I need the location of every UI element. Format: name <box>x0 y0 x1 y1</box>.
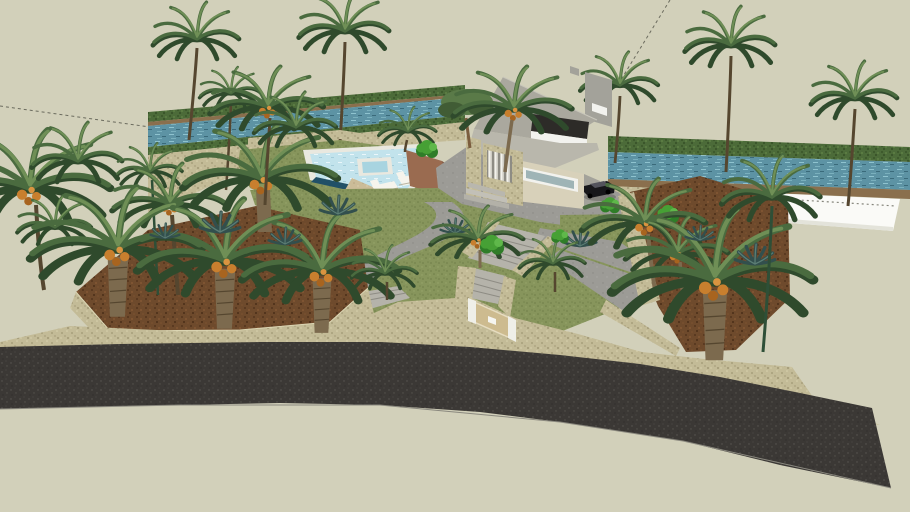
car-wheel <box>606 190 611 195</box>
jacuzzi <box>362 161 388 173</box>
gate-post <box>468 298 476 324</box>
car-wheel <box>588 194 593 199</box>
gate-post <box>508 316 516 342</box>
scene-canvas <box>0 0 910 512</box>
3d-viewport[interactable] <box>0 0 910 512</box>
